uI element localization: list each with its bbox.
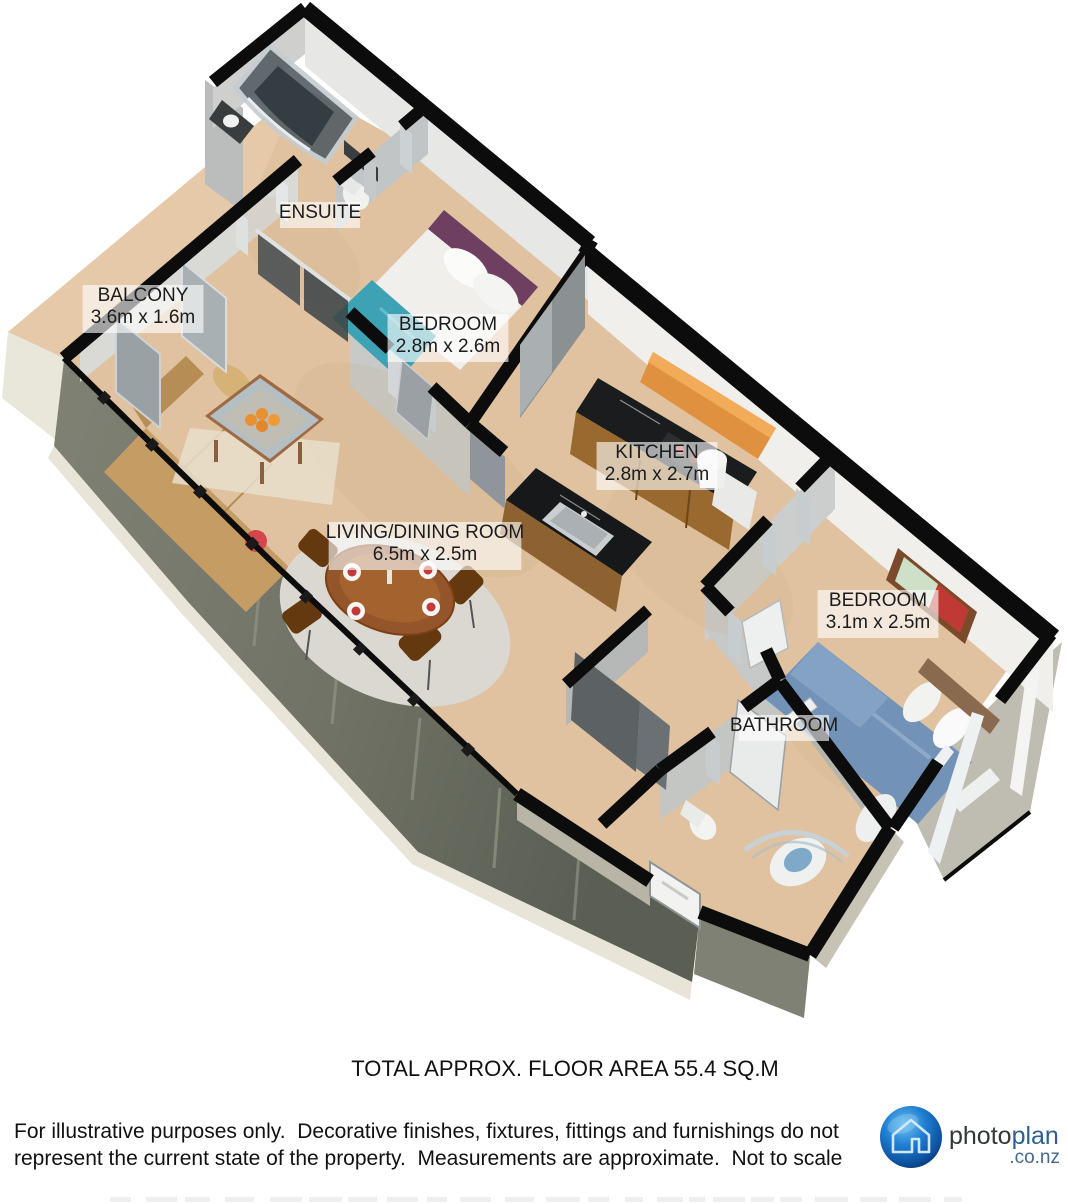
svg-text:3.6m x 1.6m: 3.6m x 1.6m	[91, 307, 196, 328]
svg-text:BALCONY: BALCONY	[98, 285, 189, 306]
svg-text:2.8m x 2.7m: 2.8m x 2.7m	[605, 464, 710, 485]
svg-text:TOTAL APPROX. FLOOR AREA 55.4: TOTAL APPROX. FLOOR AREA 55.4 SQ.M	[351, 1056, 779, 1081]
svg-text:represent the current state of: represent the current state of the prope…	[14, 1147, 842, 1170]
svg-text:BEDROOM: BEDROOM	[829, 590, 927, 611]
svg-text:For illustrative purposes only: For illustrative purposes only. Decorati…	[14, 1120, 839, 1143]
svg-text:2.8m x 2.6m: 2.8m x 2.6m	[396, 336, 501, 357]
svg-text:.co.nz: .co.nz	[1009, 1147, 1060, 1168]
svg-text:BEDROOM: BEDROOM	[399, 314, 497, 335]
svg-text:KITCHEN: KITCHEN	[615, 442, 698, 463]
svg-text:ENSUITE: ENSUITE	[279, 202, 361, 223]
svg-text:photoplan: photoplan	[949, 1122, 1059, 1150]
svg-text:3.1m x 2.5m: 3.1m x 2.5m	[826, 612, 931, 633]
svg-text:LIVING/DINING ROOM: LIVING/DINING ROOM	[326, 522, 524, 543]
svg-text:6.5m x 2.5m: 6.5m x 2.5m	[373, 544, 478, 565]
svg-text:BATHROOM: BATHROOM	[730, 715, 838, 736]
